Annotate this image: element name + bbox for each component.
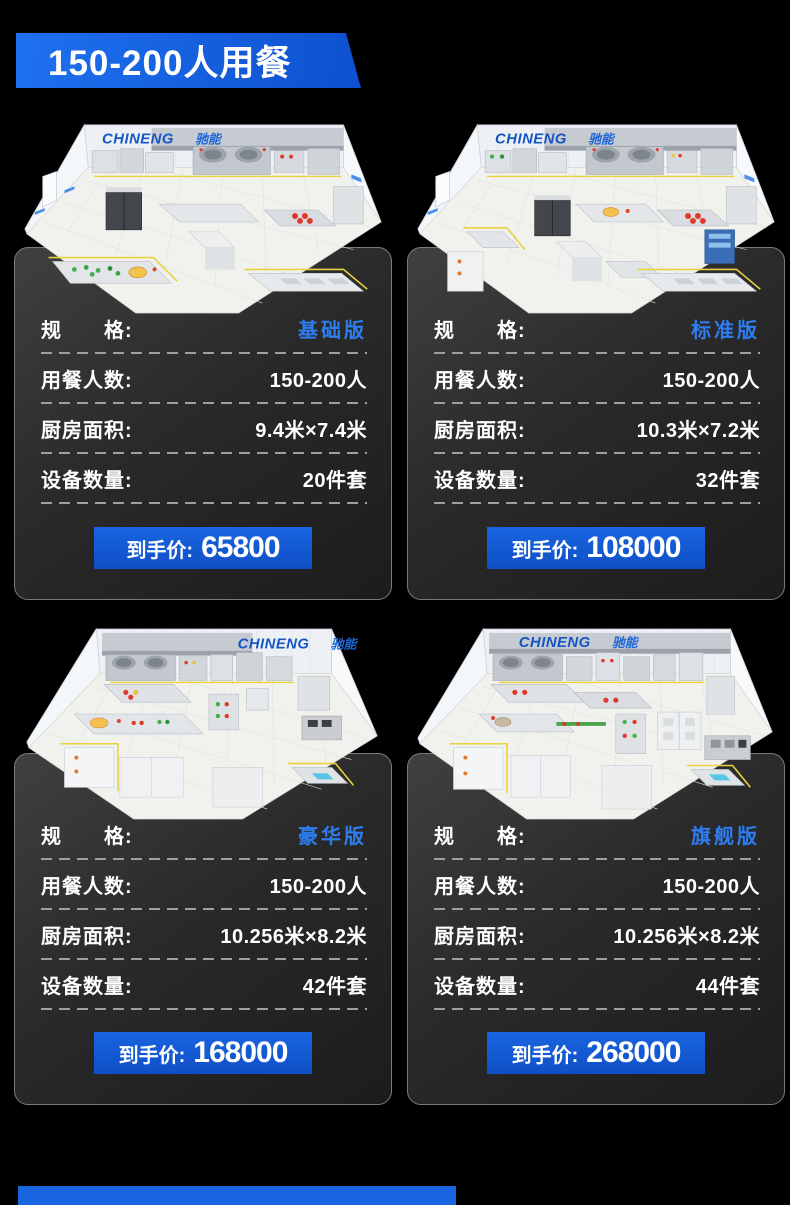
- area-value: 10.256米×8.2米: [220, 920, 367, 949]
- plan-card-deluxe: CHINENG 驰能 规 格: 豪华版 用餐人数: 150-200人 厨房面积:…: [14, 753, 392, 1105]
- row-divider: [41, 1008, 367, 1010]
- spec-row-area: 厨房面积: 9.4米×7.4米: [41, 404, 367, 452]
- spec-label: 规 格:: [41, 820, 133, 849]
- kitchen-render: CHINENG 驰能: [15, 618, 391, 822]
- kitchen-render: CHINENG 驰能: [408, 112, 784, 316]
- row-divider: [434, 1008, 760, 1010]
- spec-label: 设备数量:: [434, 970, 526, 999]
- price-value: 65800: [201, 531, 279, 565]
- spec-row-variant: 规 格: 旗舰版: [434, 810, 760, 858]
- spec-label: 厨房面积:: [41, 414, 133, 443]
- diners-value: 150-200人: [663, 364, 760, 393]
- spec-table: 规 格: 基础版 用餐人数: 150-200人 厨房面积: 9.4米×7.4米 …: [41, 304, 367, 504]
- price-button[interactable]: 到手价: 168000: [94, 1032, 312, 1074]
- brand-logo-en: CHINENG: [495, 132, 567, 148]
- spec-label: 厨房面积:: [41, 920, 133, 949]
- spec-row-equipment: 设备数量: 44件套: [434, 960, 760, 1008]
- price-label: 到手价:: [512, 534, 579, 563]
- price-label: 到手价:: [119, 1039, 186, 1068]
- section-banner: 150-200人用餐: [16, 33, 361, 88]
- spec-table: 规 格: 豪华版 用餐人数: 150-200人 厨房面积: 10.256米×8.…: [41, 810, 367, 1010]
- variant-value: 豪华版: [298, 820, 367, 849]
- spec-row-diners: 用餐人数: 150-200人: [434, 860, 760, 908]
- spec-row-variant: 规 格: 标准版: [434, 304, 760, 352]
- diners-value: 150-200人: [270, 364, 367, 393]
- brand-logo-cn: 驰能: [331, 637, 359, 652]
- spec-row-equipment: 设备数量: 42件套: [41, 960, 367, 1008]
- spec-label: 用餐人数:: [434, 364, 526, 393]
- area-value: 9.4米×7.4米: [255, 414, 367, 443]
- price-value: 168000: [193, 1036, 287, 1070]
- diners-value: 150-200人: [270, 870, 367, 899]
- spec-label: 厨房面积:: [434, 414, 526, 443]
- row-divider: [434, 502, 760, 504]
- spec-row-area: 厨房面积: 10.3米×7.2米: [434, 404, 760, 452]
- spec-label: 规 格:: [434, 820, 526, 849]
- price-label: 到手价:: [512, 1039, 579, 1068]
- area-value: 10.3米×7.2米: [637, 414, 760, 443]
- equipment-value: 20件套: [303, 464, 367, 493]
- spec-table: 规 格: 旗舰版 用餐人数: 150-200人 厨房面积: 10.256米×8.…: [434, 810, 760, 1010]
- section-title: 150-200人用餐: [48, 35, 291, 86]
- spec-row-diners: 用餐人数: 150-200人: [41, 354, 367, 402]
- spec-row-variant: 规 格: 豪华版: [41, 810, 367, 858]
- brand-logo-en: CHINENG: [238, 637, 310, 653]
- brand-logo-cn: 驰能: [195, 132, 223, 147]
- spec-row-variant: 规 格: 基础版: [41, 304, 367, 352]
- plan-card-standard: CHINENG 驰能 规 格: 标准版 用餐人数: 150-200人 厨房面积:…: [407, 247, 785, 600]
- diners-value: 150-200人: [663, 870, 760, 899]
- kitchen-render: CHINENG 驰能: [408, 618, 784, 822]
- spec-label: 厨房面积:: [434, 920, 526, 949]
- promo-page: 150-200人用餐: [0, 0, 790, 1205]
- price-button[interactable]: 到手价: 65800: [94, 527, 312, 569]
- spec-label: 设备数量:: [41, 970, 133, 999]
- brand-logo-en: CHINENG: [102, 132, 174, 148]
- spec-row-equipment: 设备数量: 32件套: [434, 454, 760, 502]
- equipment-value: 32件套: [696, 464, 760, 493]
- equipment-value: 44件套: [696, 970, 760, 999]
- equipment-value: 42件套: [303, 970, 367, 999]
- spec-label: 设备数量:: [434, 464, 526, 493]
- price-label: 到手价:: [126, 534, 193, 563]
- brand-logo-en: CHINENG: [519, 635, 591, 651]
- spec-label: 规 格:: [434, 314, 526, 343]
- brand-logo-cn: 驰能: [588, 132, 616, 147]
- plan-card-basic: CHINENG 驰能 规 格: 基础版 用餐人数: 150-200人 厨房面积:…: [14, 247, 392, 600]
- area-value: 10.256米×8.2米: [613, 920, 760, 949]
- price-button[interactable]: 到手价: 108000: [487, 527, 705, 569]
- price-value: 268000: [586, 1036, 680, 1070]
- price-value: 108000: [586, 531, 680, 565]
- next-section-banner-edge: [18, 1186, 456, 1205]
- variant-value: 标准版: [691, 314, 760, 343]
- spec-label: 用餐人数:: [434, 870, 526, 899]
- spec-row-diners: 用餐人数: 150-200人: [41, 860, 367, 908]
- price-button[interactable]: 到手价: 268000: [487, 1032, 705, 1074]
- spec-row-area: 厨房面积: 10.256米×8.2米: [41, 910, 367, 958]
- spec-row-equipment: 设备数量: 20件套: [41, 454, 367, 502]
- spec-row-area: 厨房面积: 10.256米×8.2米: [434, 910, 760, 958]
- spec-label: 设备数量:: [41, 464, 133, 493]
- spec-label: 用餐人数:: [41, 364, 133, 393]
- variant-value: 基础版: [298, 314, 367, 343]
- spec-row-diners: 用餐人数: 150-200人: [434, 354, 760, 402]
- spec-label: 规 格:: [41, 314, 133, 343]
- plan-card-flagship: CHINENG 驰能 规 格: 旗舰版 用餐人数: 150-200人 厨房面积:…: [407, 753, 785, 1105]
- kitchen-render: CHINENG 驰能: [15, 112, 391, 316]
- spec-table: 规 格: 标准版 用餐人数: 150-200人 厨房面积: 10.3米×7.2米…: [434, 304, 760, 504]
- variant-value: 旗舰版: [691, 820, 760, 849]
- row-divider: [41, 502, 367, 504]
- spec-label: 用餐人数:: [41, 870, 133, 899]
- brand-logo-cn: 驰能: [612, 635, 640, 650]
